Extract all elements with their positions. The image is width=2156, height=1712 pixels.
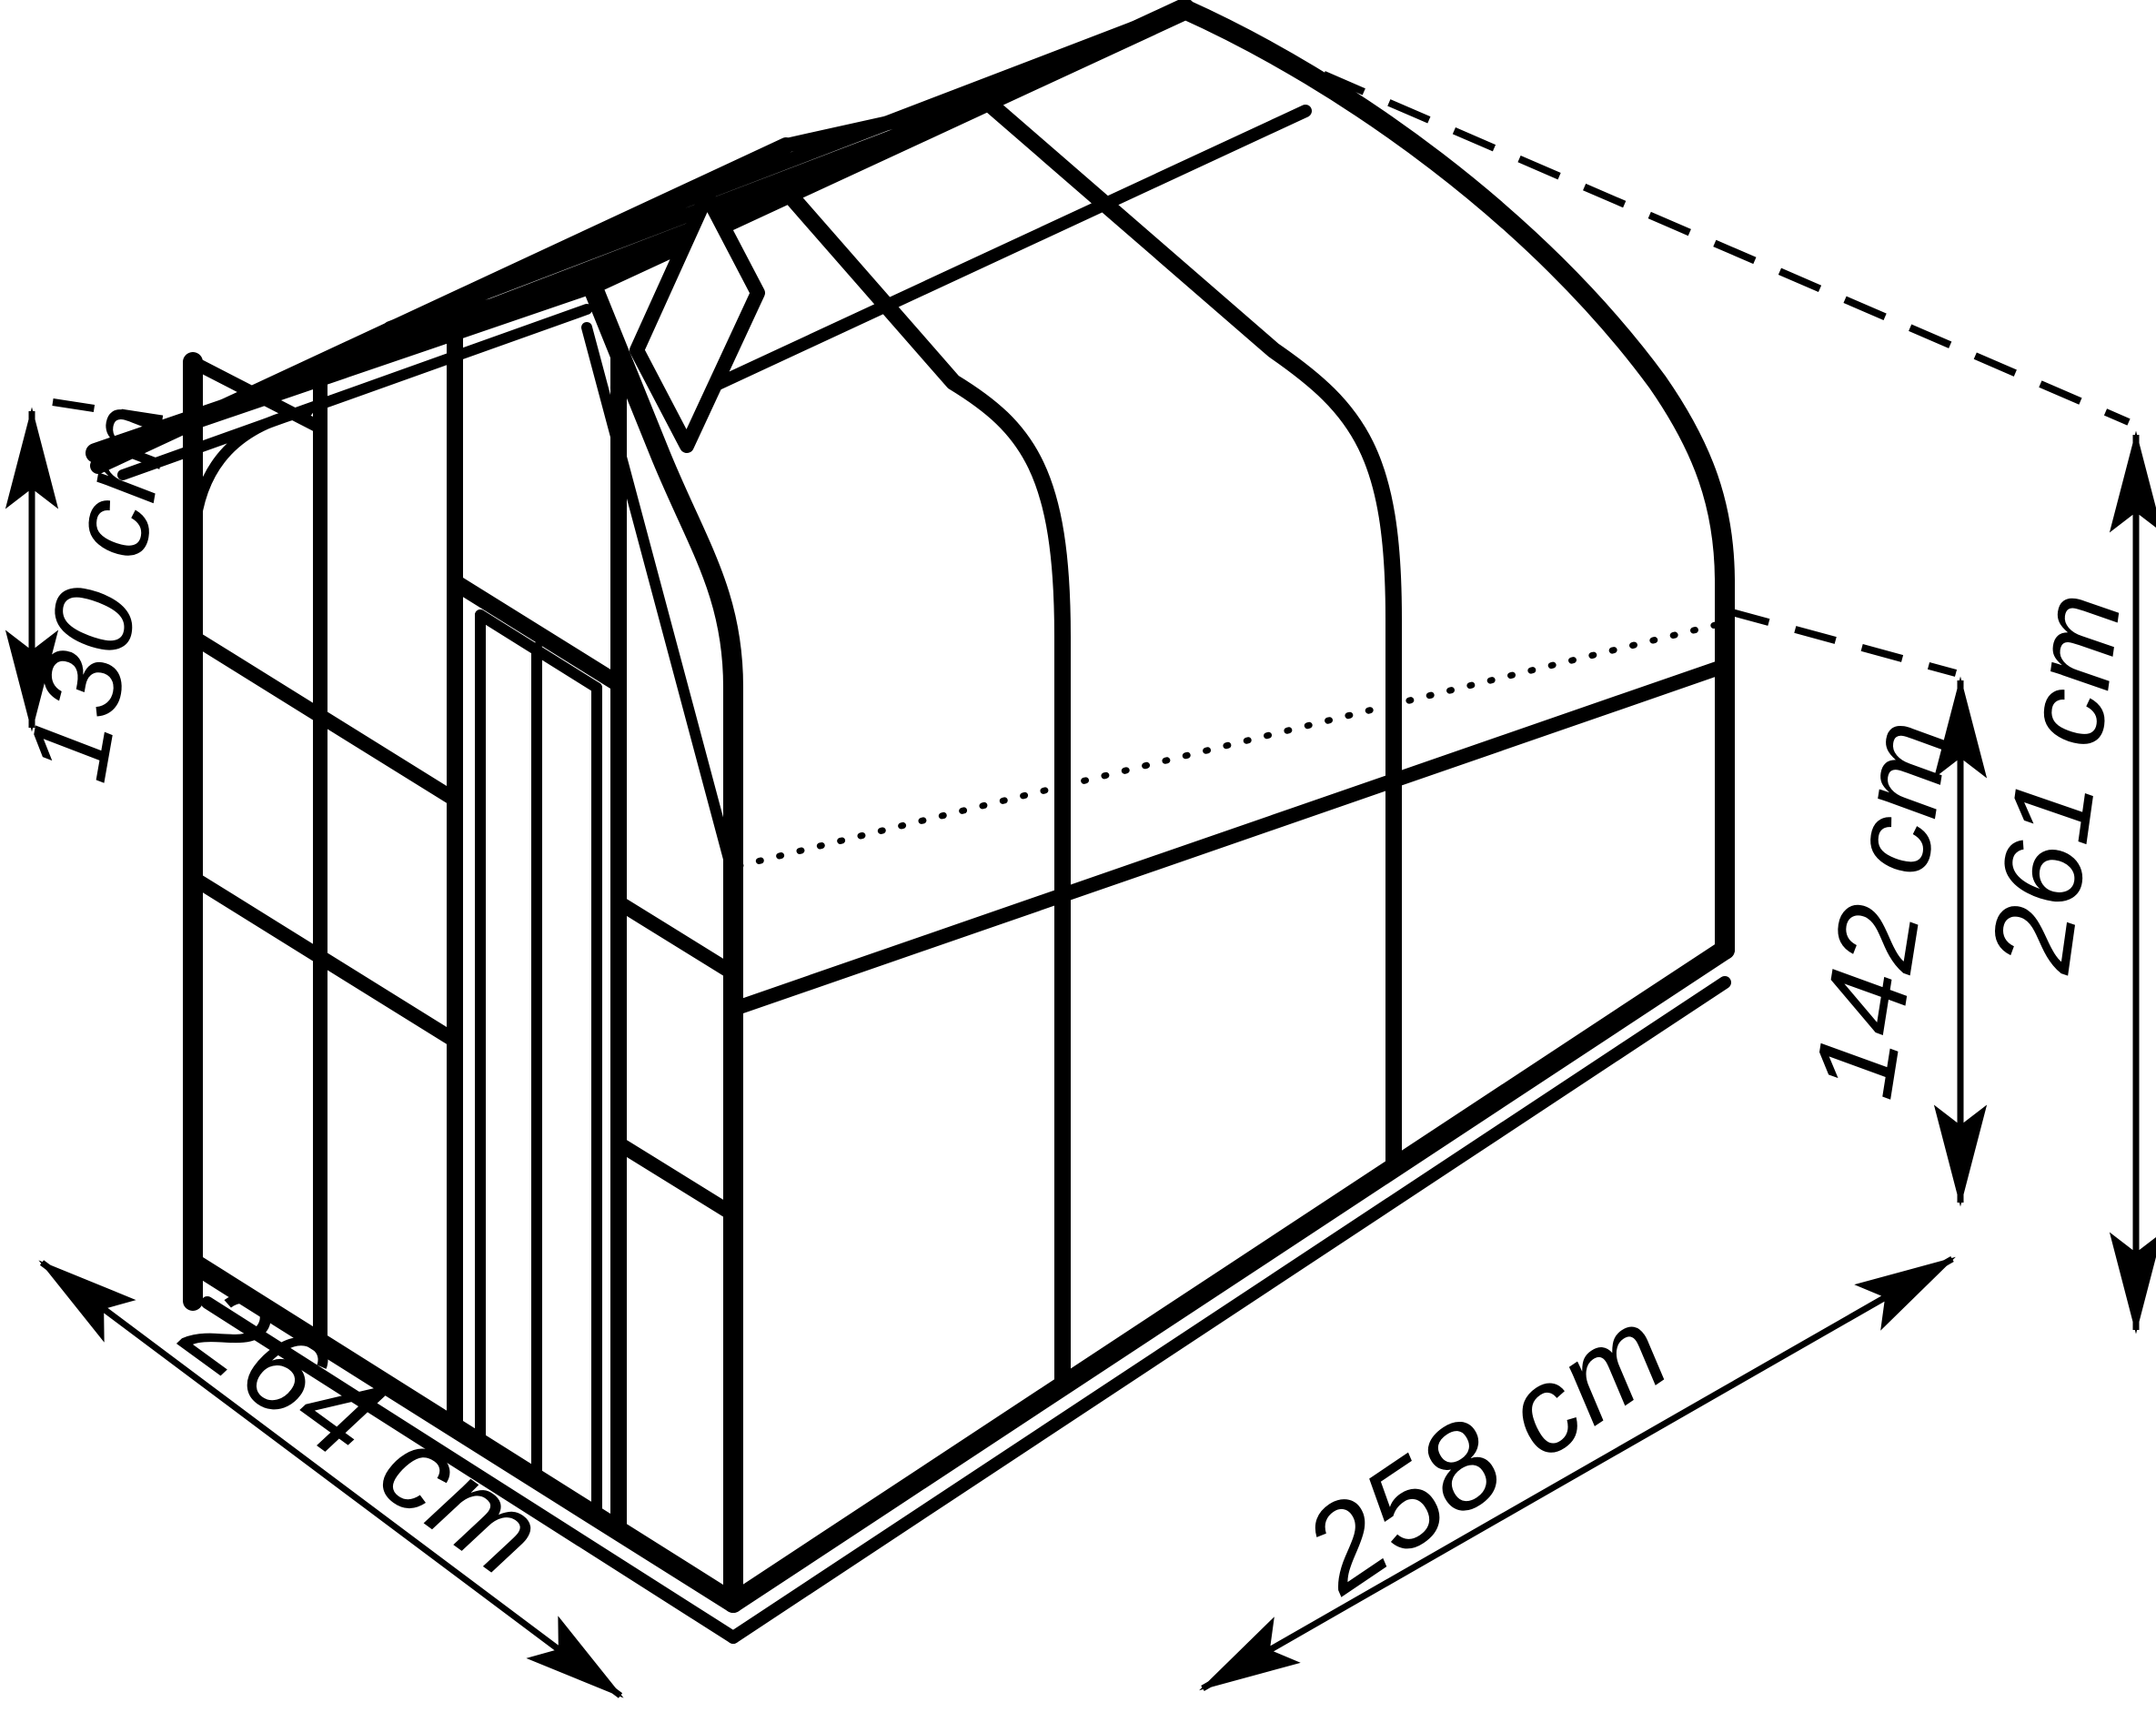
back-roof-edge — [1184, 9, 1725, 950]
leader-eave-height — [1728, 611, 1956, 673]
diagram-canvas: 130 cm 264 cm 258 cm 142 cm 261 cm — [0, 0, 2156, 1712]
right-roof-glazing-bars — [788, 101, 1394, 1386]
leader-ridge-height — [1194, 18, 2129, 422]
label-depth: 264 cm — [161, 1256, 568, 1603]
right-wall-eave-rail — [737, 666, 1725, 1008]
label-width: 258 cm — [1281, 1281, 1692, 1618]
right-wall-glazing-dotted-line — [739, 624, 1719, 866]
door — [455, 582, 619, 1517]
greenhouse-dimension-drawing: 130 cm 264 cm 258 cm 142 cm 261 cm — [0, 0, 2156, 1712]
label-ridge-height: 261 cm — [1968, 584, 2145, 980]
label-eave-height: 142 cm — [1790, 710, 1974, 1106]
left-corner-post — [193, 362, 320, 1301]
